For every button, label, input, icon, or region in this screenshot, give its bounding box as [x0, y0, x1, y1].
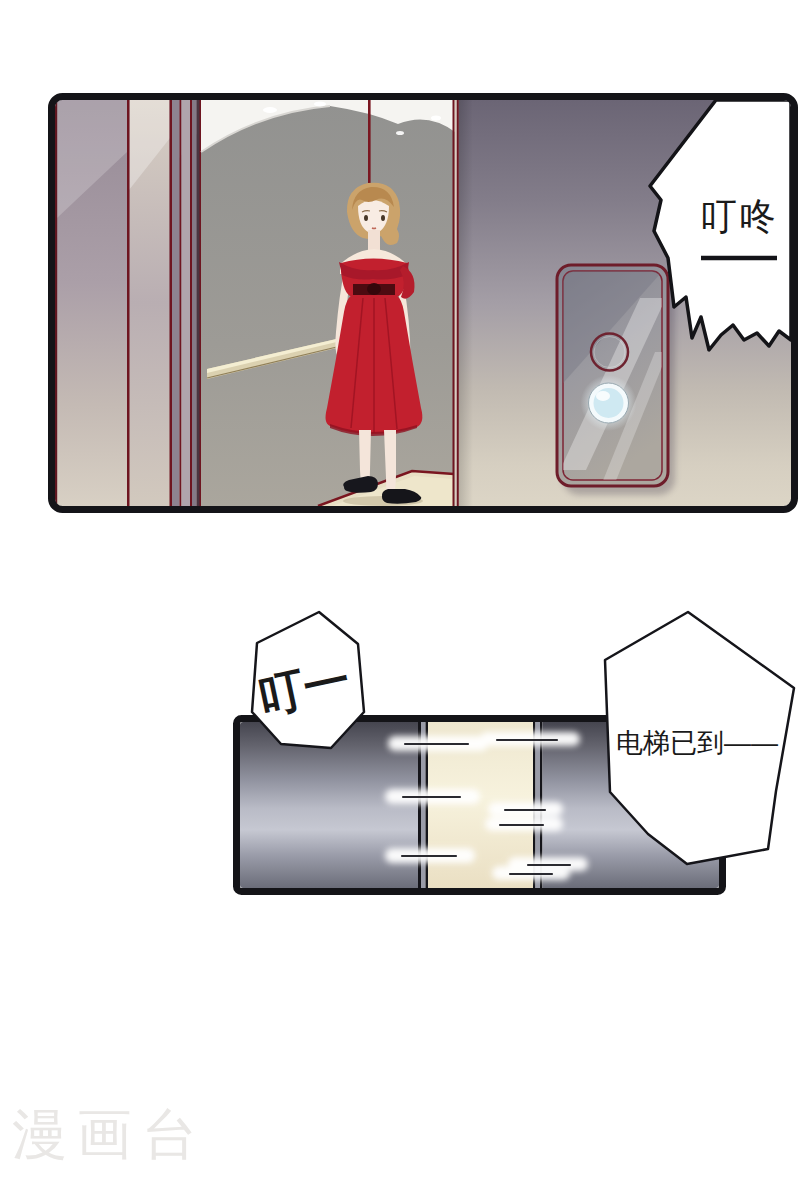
speech-bubble-dingdong-text: 叮咚: [700, 196, 778, 237]
ceiling-light: [396, 131, 404, 135]
speech-elevator-arrived-text: 电梯已到——: [616, 728, 778, 758]
sfx-bubble-ding: 叮一: [252, 612, 364, 748]
cab-corner-trim: [368, 100, 371, 192]
call-button-bottom-lit: [581, 375, 637, 431]
elevator-door-left-open: [55, 100, 201, 506]
comic-page: 叮咚: [0, 0, 800, 1180]
door-jamb-trim: [453, 100, 459, 506]
panel-elevator-interior: 叮咚: [48, 93, 798, 513]
eye: [364, 215, 368, 221]
eye: [381, 215, 385, 221]
elevator-cab-interior: [201, 100, 455, 506]
panel-elevator-doors: 叮一 电梯已到——: [233, 600, 800, 900]
neck: [368, 230, 380, 250]
elevator-call-panel: [557, 265, 675, 495]
ceiling-light: [263, 107, 277, 113]
watermark-manhuatai: 漫画台: [12, 1098, 207, 1172]
sash-knot: [367, 283, 381, 295]
ceiling-light: [431, 116, 441, 121]
ceiling-light: [314, 102, 326, 107]
